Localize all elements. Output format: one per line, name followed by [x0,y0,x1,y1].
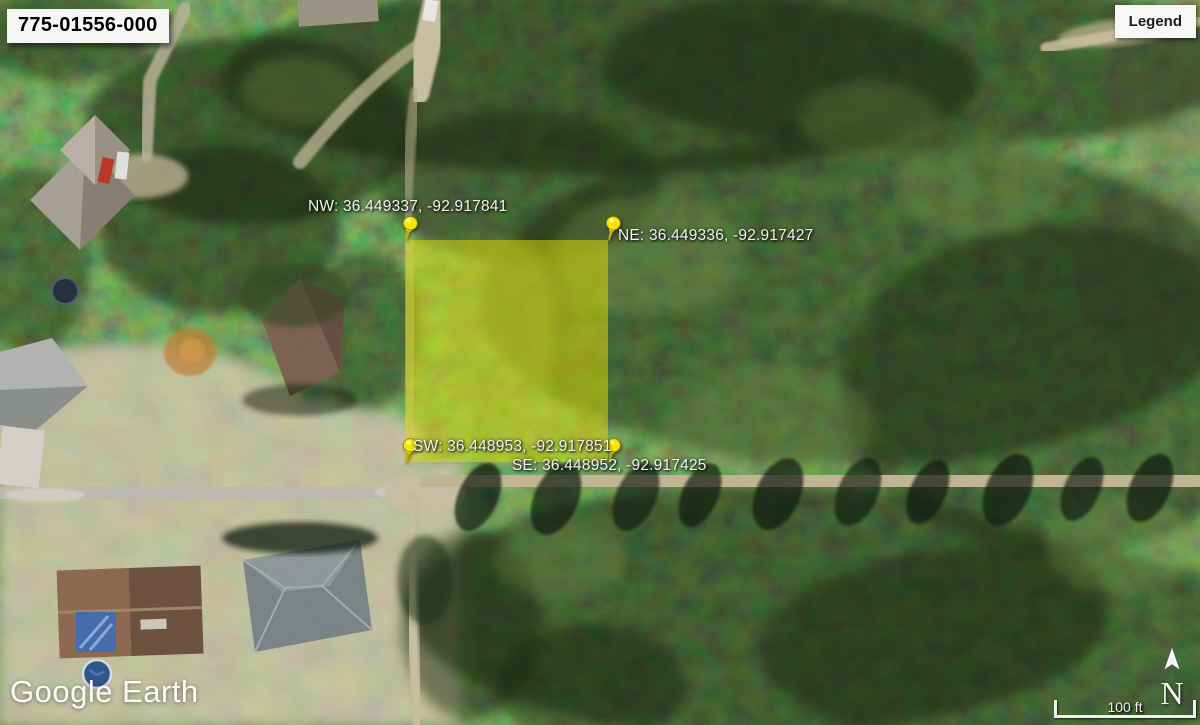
north-arrow-icon [1161,646,1183,672]
corner-label-ne: NE: 36.449336, -92.917427 [618,227,813,245]
google-earth-viewport[interactable]: NW: 36.449337, -92.917841 NE: 36.449336,… [0,0,1200,725]
legend-button[interactable]: Legend [1115,5,1196,38]
corner-label-se: SE: 36.448952, -92.917425 [512,457,707,475]
scale-bar-label: 100 ft [1107,699,1142,715]
north-arrow: N [1150,646,1194,708]
parcel-id-label: 775-01556-000 [7,9,169,43]
corner-label-nw: NW: 36.449337, -92.917841 [308,198,507,216]
map-pin-nw[interactable] [396,215,422,245]
corner-label-sw: SW: 36.448953, -92.917851 [413,438,612,456]
google-earth-watermark: Google Earth [10,674,199,710]
photo-grain [0,0,1200,725]
scale-bar: 100 ft [1054,700,1196,718]
satellite-imagery [0,0,1200,725]
